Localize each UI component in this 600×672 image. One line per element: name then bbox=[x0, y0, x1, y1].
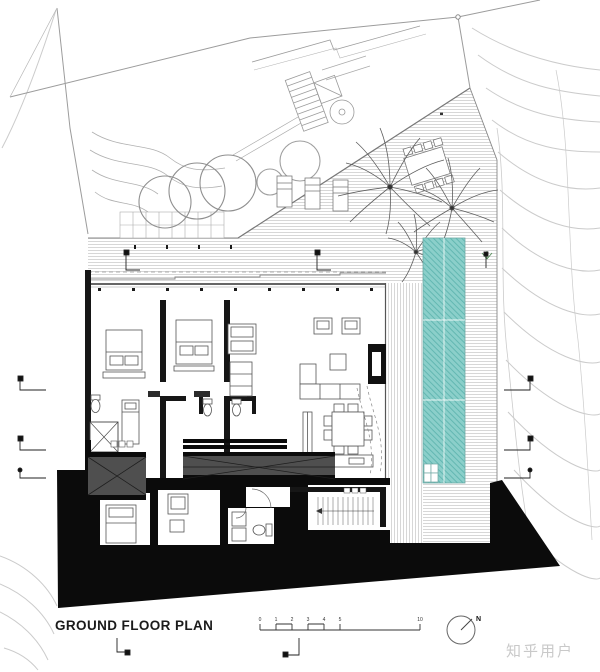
svg-text:N: N bbox=[476, 616, 481, 623]
paver-grid bbox=[120, 212, 224, 238]
svg-text:10: 10 bbox=[417, 617, 423, 623]
kitchen-appliances bbox=[111, 441, 133, 447]
svg-text:0: 0 bbox=[259, 617, 262, 623]
watermark: 知乎用户 bbox=[506, 640, 574, 661]
svg-text:4: 4 bbox=[323, 617, 326, 623]
scale-bar-labels: 0 1 2 3 4 5 10 bbox=[259, 617, 423, 623]
svg-text:1: 1 bbox=[275, 617, 278, 623]
side-table bbox=[170, 520, 184, 532]
lounge-chair bbox=[277, 176, 348, 211]
chaise bbox=[122, 400, 139, 444]
pool-steps bbox=[424, 464, 438, 482]
garden-stairs bbox=[285, 64, 349, 131]
pool-deck-strip bbox=[386, 283, 423, 545]
page-title: GROUND FLOOR PLAN bbox=[55, 618, 213, 633]
floor-plan-canvas: 0 1 2 3 4 5 10 N GROUND FLOOR PLAN 知乎用户 bbox=[0, 0, 600, 672]
fireplace bbox=[368, 344, 386, 384]
north-arrow-icon: N bbox=[447, 616, 481, 644]
swimming-pool bbox=[423, 238, 465, 483]
floor-plan-drawing: 0 1 2 3 4 5 10 N bbox=[0, 0, 600, 672]
toilet bbox=[266, 524, 272, 536]
side-table bbox=[330, 354, 346, 370]
shower bbox=[90, 422, 118, 452]
svg-text:3: 3 bbox=[307, 617, 310, 623]
bed bbox=[174, 320, 214, 371]
water-tank bbox=[330, 100, 354, 124]
svg-text:2: 2 bbox=[291, 617, 294, 623]
svg-text:5: 5 bbox=[339, 617, 342, 623]
scale-bar bbox=[260, 624, 420, 630]
kitchen-island bbox=[183, 439, 287, 443]
